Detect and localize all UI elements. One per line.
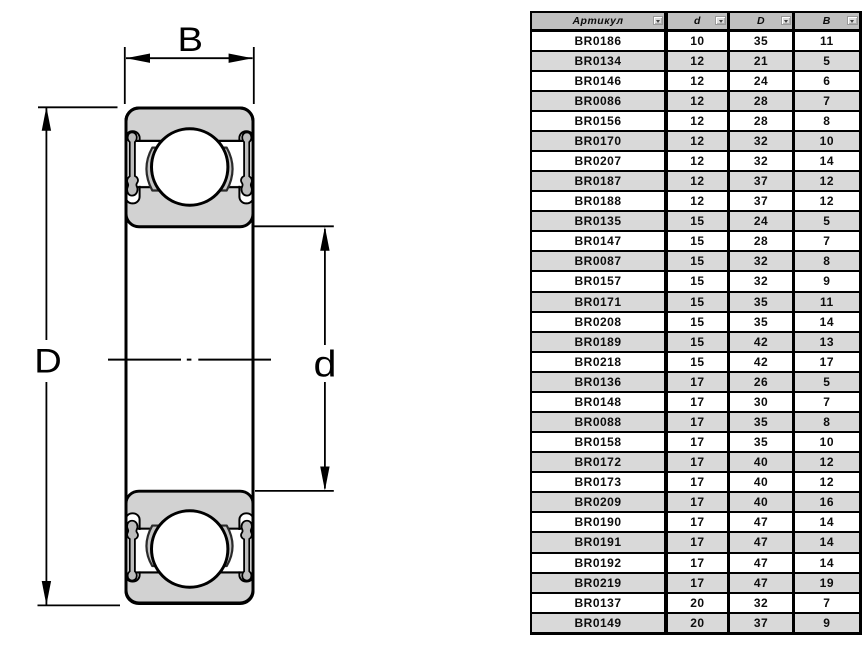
svg-text:d: d [314,344,337,385]
svg-text:D: D [34,343,62,381]
svg-text:B: B [178,21,204,59]
